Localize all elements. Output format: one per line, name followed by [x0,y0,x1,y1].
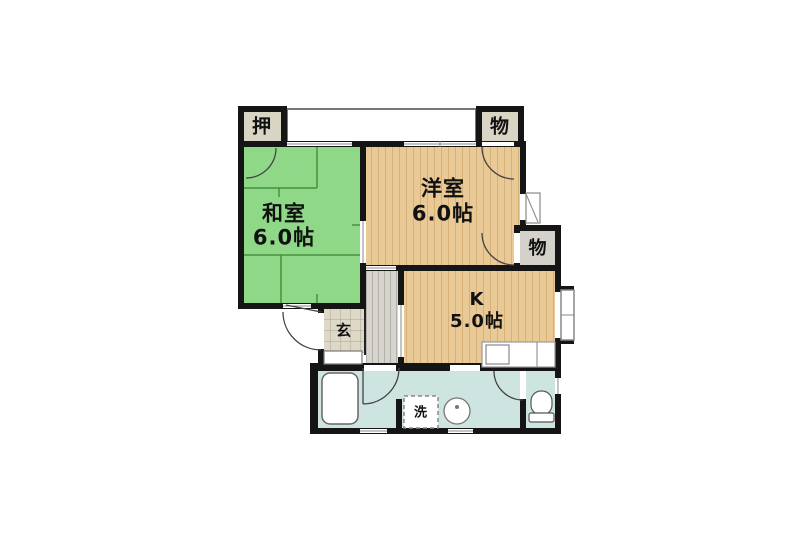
genkan-label: 玄 [336,324,352,339]
youshitsu-label: 洋室 [421,179,465,200]
entrance-doorway [318,313,324,349]
entrance-door-arc [283,312,321,350]
wall [555,363,561,434]
wall [310,428,561,434]
kitchen-size-label: 5.0帖 [450,313,504,331]
window [555,292,561,338]
doorway [364,365,396,371]
wall [555,225,561,271]
oshiire-label: 押 [252,118,272,137]
washitsu-size-label: 6.0帖 [253,228,315,249]
washbasin [444,398,470,424]
toilet-bowl [531,391,552,415]
shoe-cabinet [324,351,362,364]
kitchen-label: K [470,291,485,309]
wall [514,225,561,231]
bathtub [322,373,358,424]
kitchen-sink [486,345,509,364]
doorway [520,371,526,399]
balcony [287,109,476,144]
window [520,194,526,220]
washitsu-label: 和室 [262,204,306,225]
casement-window [526,193,540,223]
washbasin-drain [455,405,459,409]
floorplan-drawing [0,0,800,534]
doorway [450,365,480,371]
laundry-label: 洗 [414,407,428,420]
wall [396,399,402,428]
doorway [482,142,514,146]
genkan-divider-wall [364,309,366,355]
wall [238,106,244,309]
wall [310,363,318,434]
toilet-tank [529,413,554,422]
doorway [514,233,520,263]
storage-top-label: 物 [490,118,510,137]
hallway-texture [366,271,398,363]
floorplan-canvas: 押 物 和室 6.0帖 洋室 6.0帖 物 K 5.0帖 玄 洗 [0,0,800,534]
youshitsu-size-label: 6.0帖 [412,204,474,225]
storage-mid-label: 物 [529,240,548,258]
